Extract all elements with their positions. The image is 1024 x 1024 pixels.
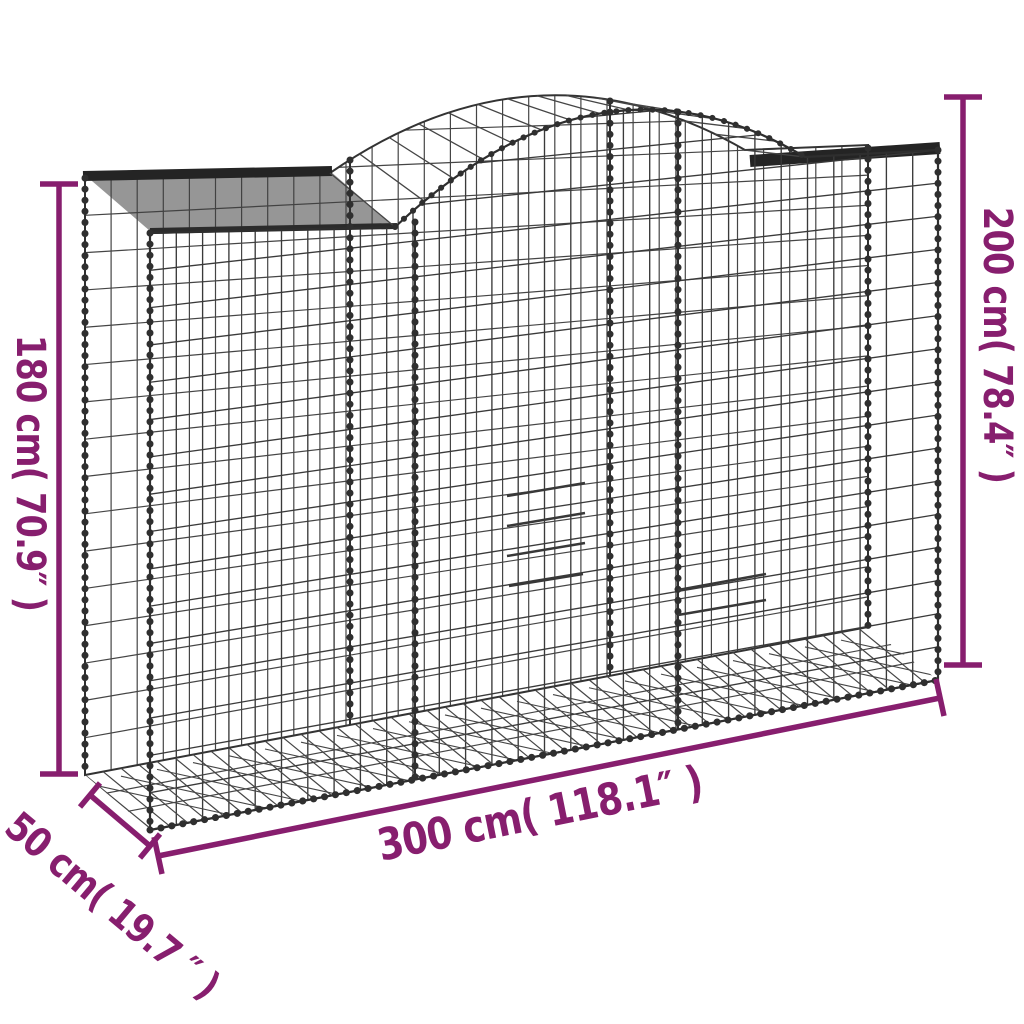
height-right-label: 200 cm( 78.4″ ) bbox=[974, 207, 1020, 483]
gabion-basket-illustration bbox=[0, 0, 1024, 1024]
product-dimension-diagram: 180 cm( 70.9″ ) 200 cm( 78.4″ ) 300 cm( … bbox=[0, 0, 1024, 1024]
height-left-label: 180 cm( 70.9″ ) bbox=[7, 335, 53, 611]
arch-top-mesh bbox=[330, 95, 805, 227]
